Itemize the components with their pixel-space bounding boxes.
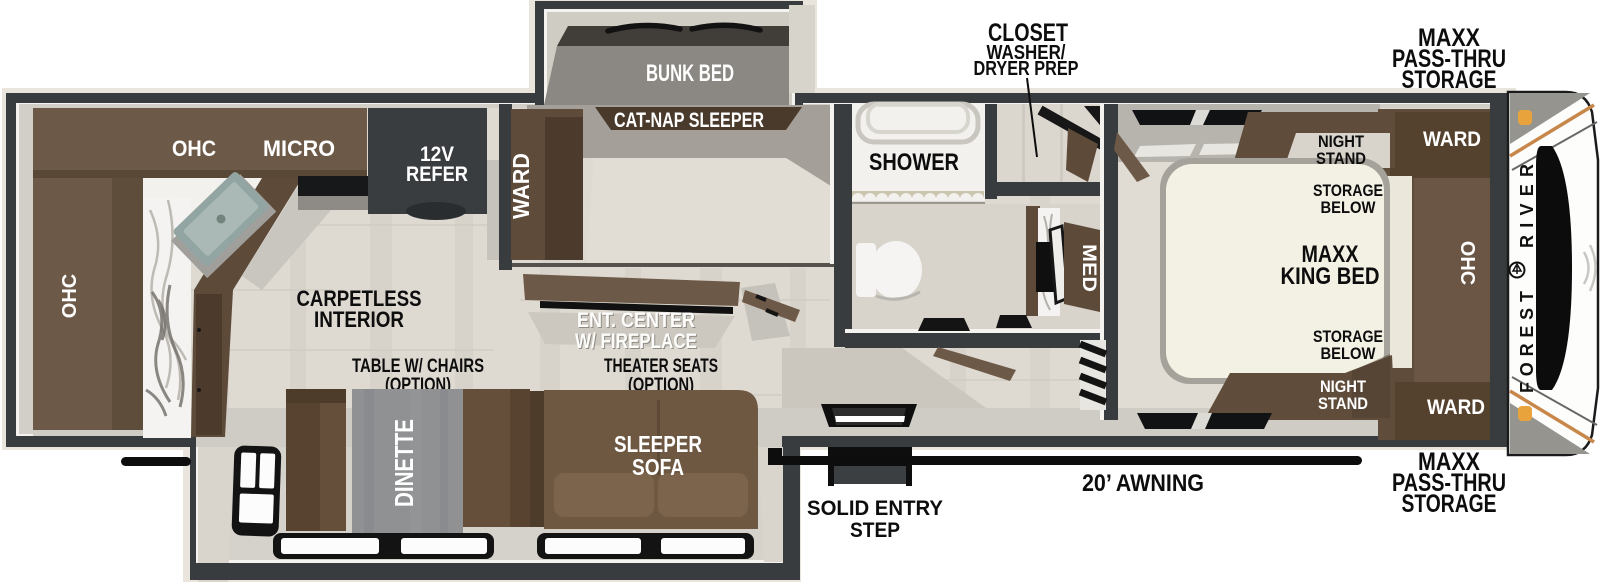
svg-text:SHOWER: SHOWER [869, 149, 959, 176]
svg-text:DRYER PREP: DRYER PREP [974, 58, 1079, 80]
svg-text:OHC: OHC [172, 136, 216, 161]
svg-text:INTERIOR: INTERIOR [314, 307, 404, 332]
svg-text:KING BED: KING BED [1281, 263, 1380, 290]
svg-text:BUNK BED: BUNK BED [646, 60, 734, 87]
svg-text:WARD: WARD [1423, 128, 1481, 151]
svg-text:20’ AWNING: 20’ AWNING [1082, 470, 1204, 497]
svg-text:STAND: STAND [1318, 394, 1368, 413]
svg-text:DINETTE: DINETTE [389, 419, 419, 507]
svg-text:TABLE W/ CHAIRS: TABLE W/ CHAIRS [352, 356, 484, 377]
svg-text:STORAGE: STORAGE [1402, 490, 1497, 518]
svg-text:ENT. CENTER: ENT. CENTER [577, 309, 695, 332]
svg-text:MICRO: MICRO [263, 136, 335, 161]
svg-text:BELOW: BELOW [1321, 198, 1377, 217]
svg-text:OHC: OHC [59, 274, 81, 318]
svg-text:CAT-NAP SLEEPER: CAT-NAP SLEEPER [614, 109, 764, 132]
svg-text:SOFA: SOFA [632, 454, 684, 480]
svg-text:REFER: REFER [406, 163, 468, 186]
svg-text:WARD: WARD [1427, 396, 1485, 419]
svg-text:RIVER: RIVER [1517, 164, 1537, 248]
svg-text:W/ FIREPLACE: W/ FIREPLACE [575, 330, 697, 353]
svg-text:STAND: STAND [1316, 149, 1366, 168]
svg-text:STORAGE: STORAGE [1402, 66, 1497, 94]
svg-text:STEP: STEP [850, 519, 900, 542]
svg-text:WARD: WARD [508, 153, 534, 219]
svg-text:MED: MED [1078, 244, 1099, 292]
svg-text:SOLID ENTRY: SOLID ENTRY [807, 497, 943, 520]
svg-text:THEATER SEATS: THEATER SEATS [604, 356, 718, 377]
svg-text:BELOW: BELOW [1321, 344, 1377, 363]
svg-text:OHC: OHC [1456, 241, 1478, 285]
